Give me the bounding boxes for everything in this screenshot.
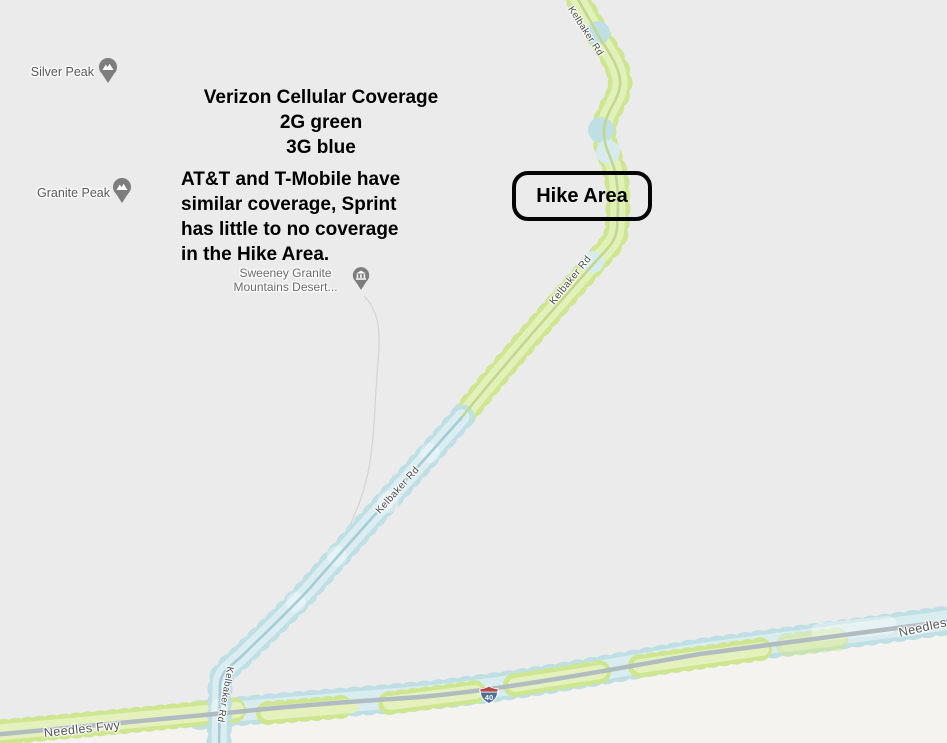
mountain-pin-icon [97,57,119,85]
granite-peak-label: Granite Peak [20,186,110,200]
sweeney-granite-pin[interactable] [351,266,371,292]
coverage-annotation-body: AT&T and T-Mobile have similar coverage,… [181,167,481,267]
coverage-annotation-header: Verizon Cellular Coverage 2G green 3G bl… [180,85,462,160]
sweeney-granite-label-line2: Mountains Desert... [218,280,353,294]
museum-pin-icon [351,266,371,292]
interstate-40-shield-icon: 40 [478,685,500,710]
mountain-pin-icon [111,177,133,205]
sweeney-granite-label: Sweeney Granite Mountains Desert... [218,266,353,294]
coverage-title: Verizon Cellular Coverage [180,85,462,110]
hike-area-label: Hike Area [536,185,628,208]
trail-line [348,296,379,530]
hike-area-callout: Hike Area [512,171,652,221]
legend-3g-blue: 3G blue [180,135,462,160]
map-roads-canvas [0,0,947,743]
silver-peak-label: Silver Peak [14,65,94,79]
silver-peak-pin[interactable] [97,57,119,85]
granite-peak-pin[interactable] [111,177,133,205]
sweeney-granite-label-line1: Sweeney Granite [218,266,353,280]
interstate-number: 40 [485,693,493,702]
legend-2g-green: 2G green [180,110,462,135]
map-viewport: Silver Peak Granite Peak Sweeney Granite… [0,0,947,743]
